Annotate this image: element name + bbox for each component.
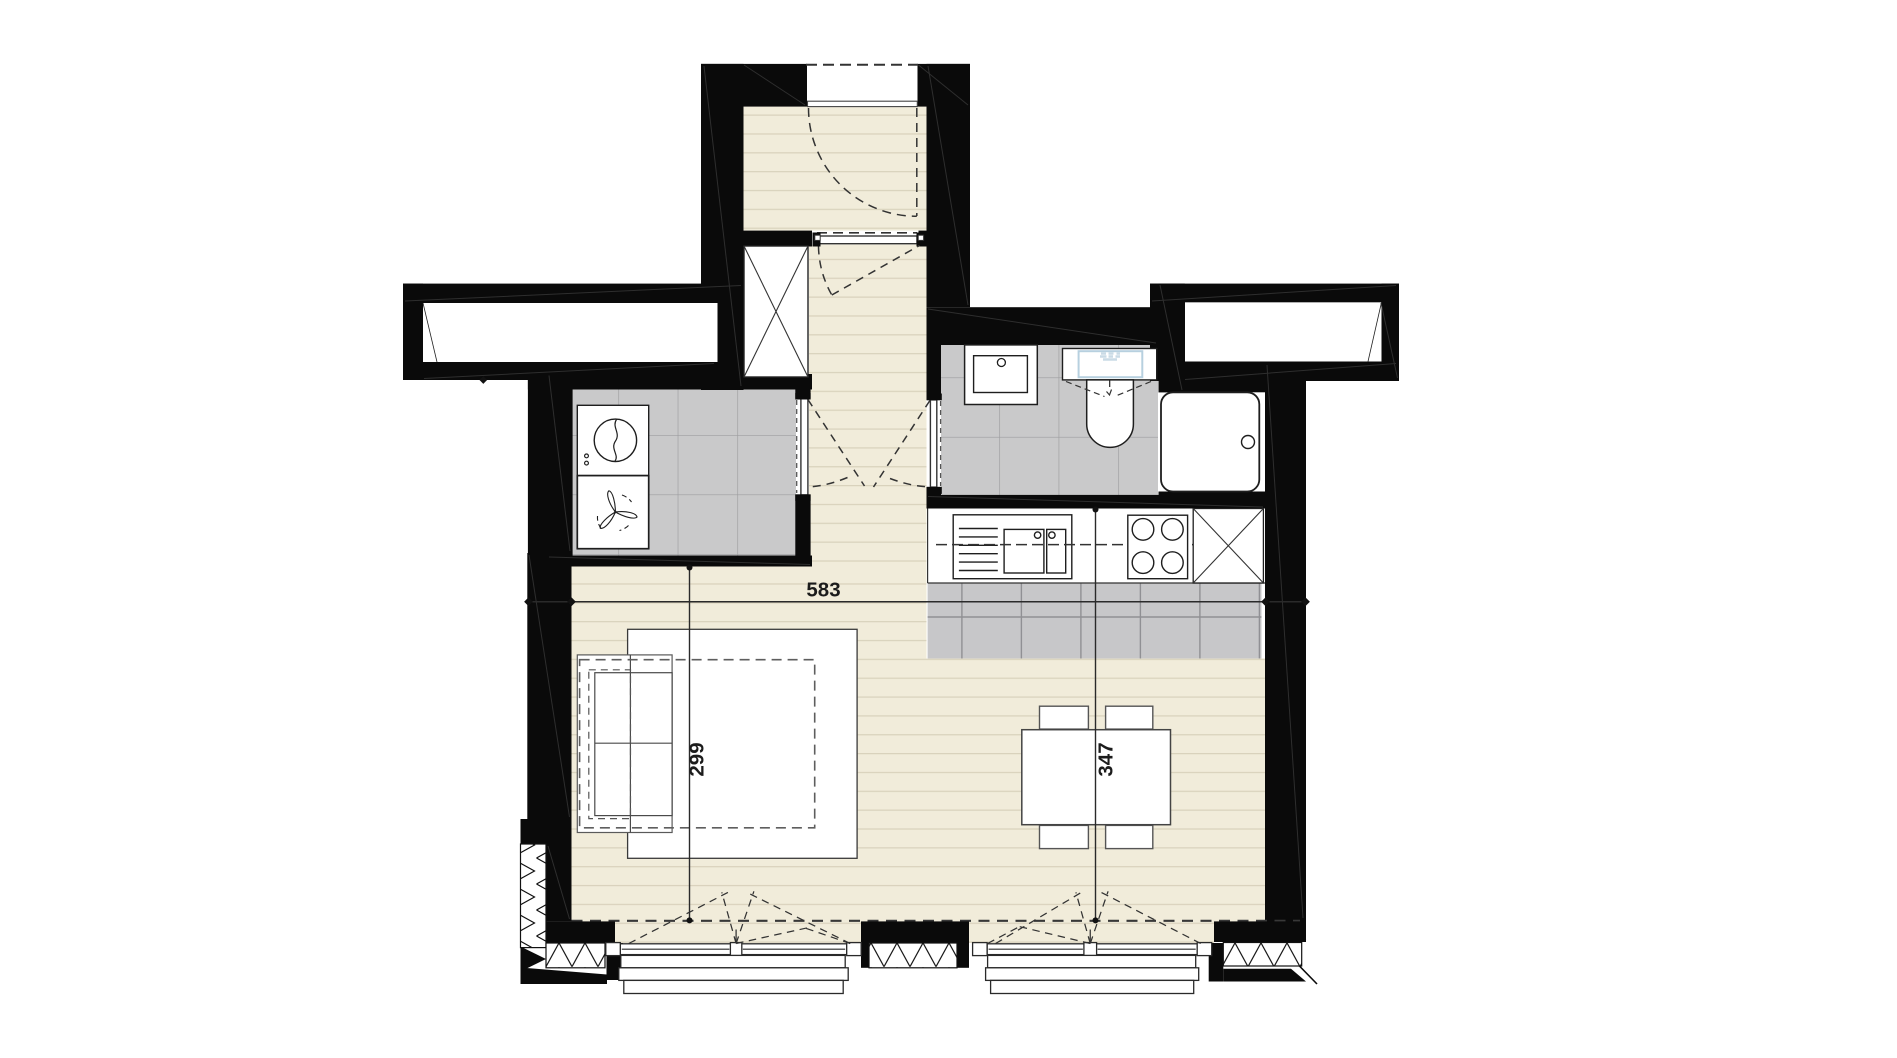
svg-text:299: 299 bbox=[686, 742, 709, 776]
svg-text:347: 347 bbox=[1095, 742, 1118, 776]
svg-text:583: 583 bbox=[806, 579, 840, 602]
